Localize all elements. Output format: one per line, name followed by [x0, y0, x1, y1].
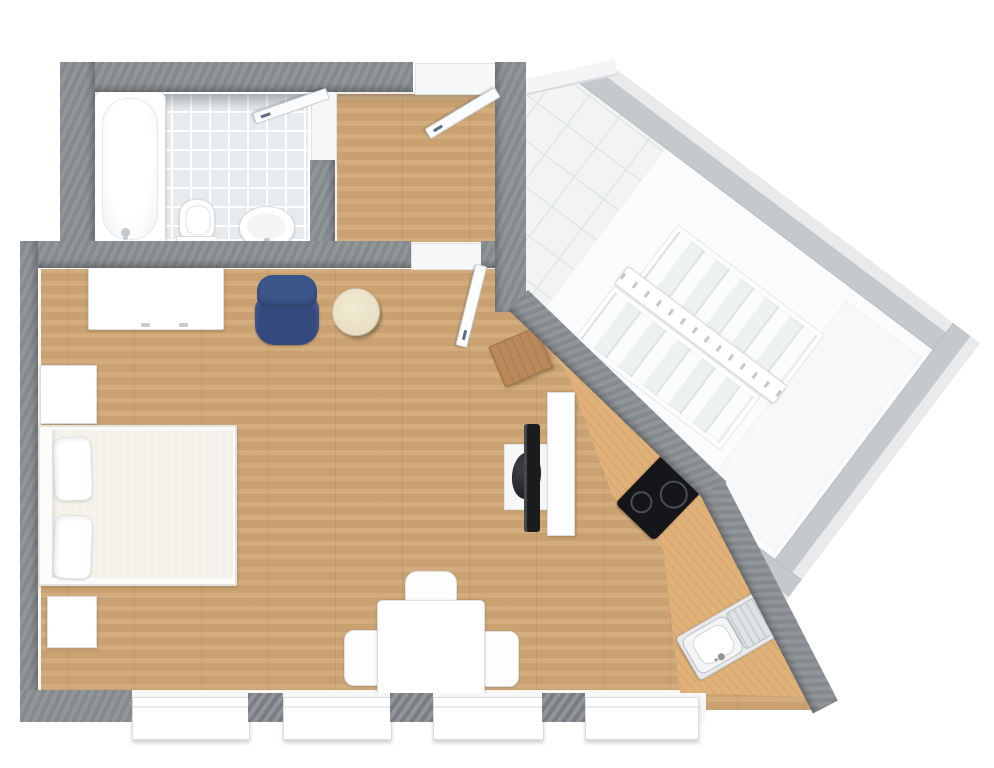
wall-top-west — [60, 62, 413, 92]
pedestal-sink-bowl — [247, 213, 285, 240]
apartment — [0, 0, 994, 768]
window-3 — [433, 697, 544, 740]
toilet-seat — [185, 205, 211, 236]
wall-bathroom-hallway — [310, 160, 335, 243]
nightstand-bottom — [47, 596, 97, 648]
dining-chair-north — [405, 571, 457, 603]
entry-door-threshold — [415, 63, 497, 95]
toilet — [179, 199, 215, 241]
floor-plan — [0, 0, 994, 768]
window-pier-3 — [542, 693, 585, 722]
wardrobe-dresser — [88, 262, 224, 330]
dining-chair-east — [482, 631, 519, 687]
pillow — [53, 514, 93, 579]
wall-left-exterior — [20, 241, 38, 718]
sink-bowl — [689, 621, 738, 668]
living-door-threshold — [411, 243, 484, 270]
wall-bathroom-left — [60, 62, 95, 247]
armchair-back — [257, 275, 317, 307]
window-1 — [132, 697, 250, 740]
window-4 — [585, 697, 699, 740]
nightstand-top — [40, 365, 97, 424]
door-handle — [462, 330, 467, 340]
window-2 — [283, 697, 392, 740]
pillow — [53, 436, 93, 501]
bathtub — [94, 90, 166, 248]
bathtub-faucet — [121, 228, 130, 237]
dresser-handle — [179, 323, 188, 327]
dining-chair-west — [344, 630, 380, 686]
door-handle — [433, 125, 443, 133]
hallway-floor — [335, 92, 500, 244]
side-panel — [547, 392, 575, 536]
door-handle — [260, 112, 270, 118]
window-pier-2 — [390, 693, 433, 722]
burner-small — [626, 487, 657, 518]
wall-middle-west — [20, 241, 411, 268]
window-pier-1 — [248, 693, 283, 722]
round-pouf — [332, 288, 380, 336]
wall-hallway-right — [495, 62, 526, 312]
dresser-handle — [141, 323, 150, 327]
dining-table — [377, 600, 485, 708]
bathtub-basin — [102, 98, 158, 240]
tv — [524, 424, 540, 532]
blue-armchair — [255, 275, 319, 345]
wall-bottom-corner — [20, 690, 132, 722]
